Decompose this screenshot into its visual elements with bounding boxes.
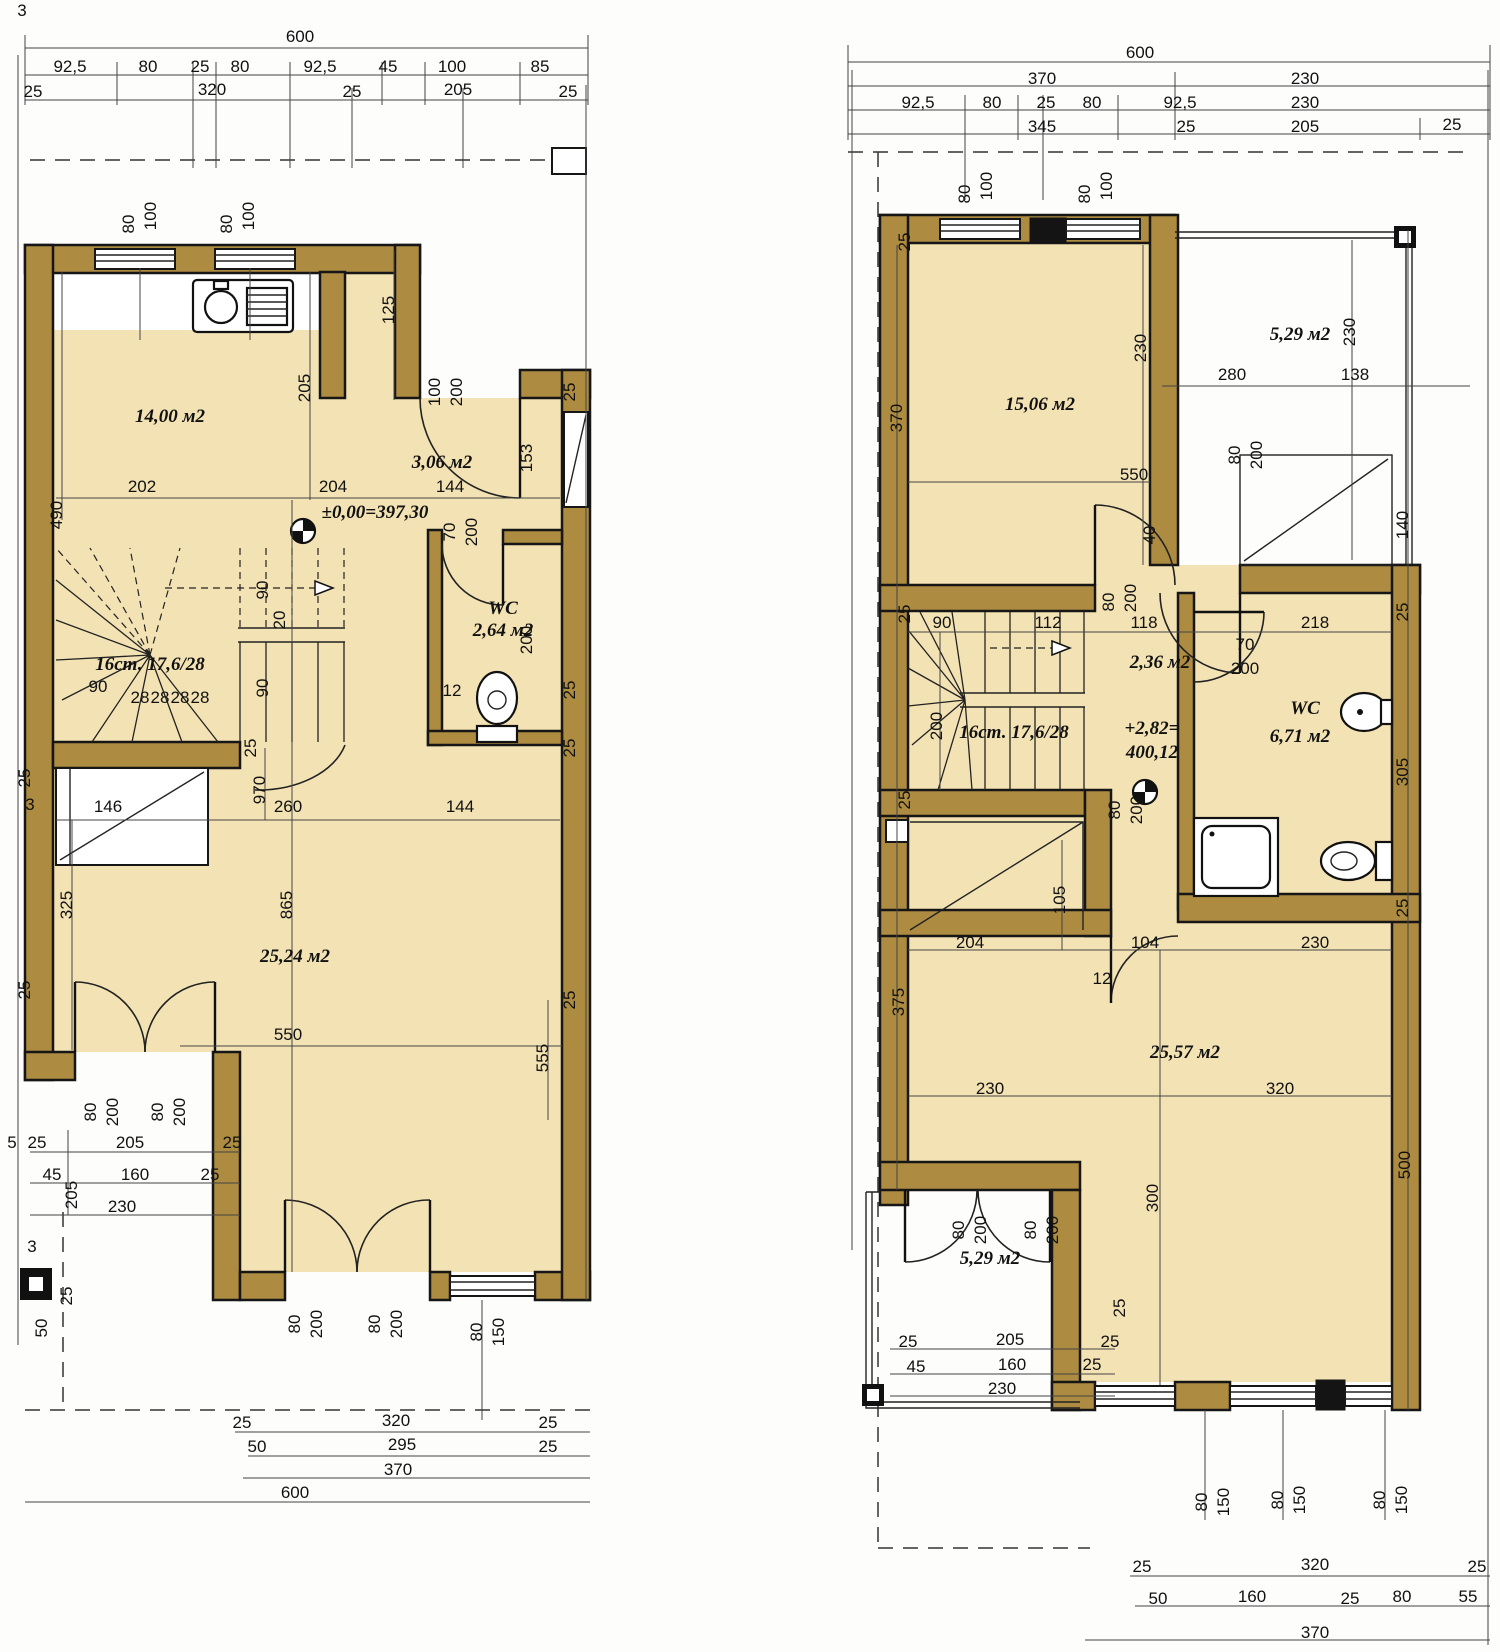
dim-label: 200 [103, 1098, 122, 1126]
dim-label: 25 [1393, 603, 1412, 622]
room-label-terrace: 5,29 м2 [1270, 324, 1331, 345]
dim-label: 144 [446, 797, 474, 816]
dim-label: 80 [1393, 1587, 1412, 1606]
dim-label: 45 [907, 1357, 926, 1376]
ground-floor-plan [18, 35, 590, 1502]
dim-label: 230 [976, 1079, 1004, 1098]
room-label-wc: WC [488, 598, 518, 619]
dim-label: 205 [62, 1181, 81, 1209]
dim-label: 25 [57, 1287, 76, 1306]
dim-label: 3 [25, 795, 34, 814]
dim-label: 150 [1392, 1486, 1411, 1514]
dim-label: 25 [1341, 1589, 1360, 1608]
dim-label: 50 [32, 1319, 51, 1338]
dim-label: 320 [382, 1411, 410, 1430]
dim-label: 80 [81, 1103, 100, 1122]
dim-label: 85 [531, 57, 550, 76]
window-80x100 [215, 249, 295, 269]
dim-label: 202 [128, 477, 156, 496]
dim-label: 550 [274, 1025, 302, 1044]
dim-label: 112 [1034, 613, 1061, 632]
dim-label: 138 [1341, 365, 1369, 384]
wall-left [25, 245, 53, 1080]
dim-label: 28 [171, 688, 190, 707]
dim-label: 28 [131, 688, 150, 707]
dim-label: 80 [1083, 93, 1102, 112]
dim-label: 90 [253, 581, 272, 600]
dim-label: 200 [517, 626, 536, 654]
dim-label: 144 [436, 477, 464, 496]
dim-label: 25 [559, 82, 578, 101]
dim-label: 205 [295, 374, 314, 402]
dim-label: 25 [1393, 899, 1412, 918]
dim-label: 25 [233, 1413, 252, 1432]
dim-label: 90 [253, 679, 272, 698]
dim-label: 204 [319, 477, 347, 496]
dim-label: 200 [307, 1310, 326, 1338]
dim-label: 550 [1120, 465, 1148, 484]
dim-label: 25 [899, 1332, 918, 1351]
dim-label: 230 [988, 1379, 1016, 1398]
dim-label: 80 [217, 215, 236, 234]
dim-label: 25 [1101, 1332, 1120, 1351]
dim-label: 70 [1236, 635, 1255, 654]
dim-label: 200 [447, 378, 466, 406]
dim-label: 92,5 [1163, 93, 1196, 112]
dim-label: 150 [489, 1318, 508, 1346]
dim-label: 25 [539, 1413, 558, 1432]
dim-label: 325 [57, 891, 76, 919]
floor-plan-sheet: 360092,580258092,54510085253202520525801… [0, 0, 1500, 1652]
wall-kitchen-divider [320, 272, 345, 398]
dim-label: 45 [43, 1165, 62, 1184]
dim-label: 205 [996, 1330, 1024, 1349]
dim-label: 280 [1218, 365, 1246, 384]
dim-label: 100 [425, 378, 444, 406]
dim-label: 25 [1083, 1355, 1102, 1374]
dim-label: 970 [250, 776, 269, 804]
dim-label: 200 [1043, 1216, 1062, 1244]
dim-label: 80 [1192, 1493, 1211, 1512]
dim-label: 25 [1037, 93, 1056, 112]
dim-label: 153 [517, 444, 536, 472]
dim-label: 200 [1127, 796, 1146, 824]
dim-label: 80 [467, 1323, 486, 1342]
wall-balcony-top [880, 1162, 1080, 1190]
dim-label: 500 [1395, 1151, 1414, 1179]
dim-label: 200 [1231, 659, 1259, 678]
window-80x150 [1345, 1386, 1392, 1406]
dim-label: 25 [24, 82, 43, 101]
dim-label: 25 [1133, 1557, 1152, 1576]
window-80x150 [1230, 1386, 1316, 1406]
dim-label: 80 [1075, 185, 1094, 204]
wardrobe [1240, 455, 1392, 565]
wall-left-2 [880, 215, 908, 1205]
dim-label: 600 [286, 27, 314, 46]
wall-right-2 [1392, 565, 1420, 1410]
terrace-parapet [1175, 226, 1416, 565]
dim-label: 25 [201, 1165, 220, 1184]
dim-label: 230 [108, 1197, 136, 1216]
dim-label: 25 [560, 739, 579, 758]
dim-label: 200 [971, 1216, 990, 1244]
wall-bottom-2 [1175, 1382, 1230, 1410]
dim-label: 80 [1021, 1221, 1040, 1240]
dim-label: 3 [27, 1237, 36, 1256]
upper-floor-plan [848, 45, 1490, 1645]
dim-label: 200 [927, 712, 946, 740]
dim-label: 90 [89, 677, 108, 696]
dim-label: 150 [1214, 1488, 1233, 1516]
dim-label: 200 [387, 1310, 406, 1338]
dim-label: 200 [462, 518, 481, 546]
dim-label: 25 [15, 981, 34, 1000]
wall-wc-bottom-2 [1178, 894, 1420, 922]
dim-label: 260 [274, 797, 302, 816]
dim-label: 70 [440, 523, 459, 542]
dim-label: 80 [119, 215, 138, 234]
level-mark-ground: ±0,00=397,30 [322, 502, 429, 523]
dim-label: 370 [384, 1460, 412, 1479]
dim-label: 25 [241, 739, 260, 758]
dim-label: 80 [1370, 1491, 1389, 1510]
bay-window-146 [56, 768, 208, 865]
dim-label: 305 [1393, 758, 1412, 786]
dim-label: 25 [191, 57, 210, 76]
dim-label: 80 [955, 185, 974, 204]
dim-label: 80 [139, 57, 158, 76]
room-label-bedroom: 15,06 м2 [1005, 394, 1076, 415]
dim-label: 205 [116, 1133, 144, 1152]
wall-step [395, 245, 420, 398]
wall-wc-left-2 [1178, 593, 1194, 910]
dim-label: 25 [895, 605, 914, 624]
dim-label: 80 [1268, 1491, 1287, 1510]
dim-label: 25 [15, 769, 34, 788]
room-label-hall: 3,06 м2 [411, 452, 473, 473]
dim-label: 230 [1301, 933, 1329, 952]
window-153 [564, 412, 588, 507]
dim-label: 92,5 [901, 93, 934, 112]
dim-label: 370 [1301, 1623, 1329, 1642]
room-label-living: 25,24 м2 [259, 946, 331, 967]
level-mark-icon [291, 519, 315, 543]
dim-label: 80 [1225, 446, 1244, 465]
dim-label: 80 [365, 1315, 384, 1334]
dim-label: 25 [895, 233, 914, 252]
dim-label: 600 [281, 1483, 309, 1502]
dim-label: 205 [1291, 117, 1319, 136]
dim-label: 12 [443, 681, 462, 700]
dim-label: 295 [388, 1435, 416, 1454]
column-symbol [20, 1268, 52, 1300]
dim-label: 205 [444, 80, 472, 99]
dim-label: 80 [231, 57, 250, 76]
wall-bottom [240, 1272, 285, 1300]
stairs-label: 16ст. 17,6/28 [95, 654, 205, 675]
window-80x100 [940, 219, 1020, 239]
dim-label: 28 [151, 688, 170, 707]
dim-label: 80 [285, 1315, 304, 1334]
dim-label: 50 [248, 1437, 267, 1456]
chimney-symbol [552, 148, 586, 174]
dim-label: 400,12 [1125, 742, 1179, 763]
dim-label: 80 [949, 1221, 968, 1240]
dim-label: 118 [1130, 613, 1157, 632]
dim-label: 25 [1443, 115, 1462, 134]
wall-stair [53, 742, 240, 768]
dim-label: 5 [7, 1133, 16, 1152]
dim-label: 204 [956, 933, 984, 952]
dim-label: 370 [887, 404, 906, 432]
dim-label: 3 [17, 1, 26, 20]
dim-label: 200 [1247, 441, 1266, 469]
dim-label: 230 [1291, 69, 1319, 88]
dim-label: 230 [1291, 93, 1319, 112]
dim-label: 320 [1301, 1555, 1329, 1574]
dim-label: 25 [1177, 117, 1196, 136]
dim-label: 146 [94, 797, 122, 816]
dim-label: 25 [560, 681, 579, 700]
wall-bottom [430, 1272, 450, 1300]
dim-label: 92,5 [53, 57, 86, 76]
dim-label: 28 [191, 688, 210, 707]
dim-label: 12 [1093, 969, 1112, 988]
dim-label: 150 [1290, 1486, 1309, 1514]
wall-post-2 [1316, 1380, 1345, 1410]
level-mark-upper: +2,82= [1125, 718, 1180, 739]
room-label-hall2: 2,36 м2 [1129, 652, 1191, 673]
dim-label: 600 [1126, 43, 1154, 62]
wall-closet-bottom [880, 910, 1111, 936]
dim-label: 80 [148, 1103, 167, 1122]
dim-label: 80 [1105, 801, 1124, 820]
dim-label: 40 [1140, 526, 1159, 545]
room-label-kitchen: 14,00 м2 [135, 406, 206, 427]
dim-label: 345 [1028, 117, 1056, 136]
dim-label: 490 [47, 501, 66, 529]
plans-canvas: 360092,580258092,54510085253202520525801… [0, 0, 1500, 1652]
room-label-wc2: WC [1290, 698, 1320, 719]
dim-label: 80 [983, 93, 1002, 112]
wall-wc-left [428, 530, 442, 745]
dim-label: 370 [1028, 69, 1056, 88]
dim-label: 25 [560, 383, 579, 402]
dim-label: 160 [121, 1165, 149, 1184]
window-80x100 [95, 249, 175, 269]
dim-label: 105 [1050, 886, 1069, 914]
dim-label: 100 [438, 57, 466, 76]
wall-bedroom-right [1150, 215, 1178, 565]
dim-label: 50 [1149, 1589, 1168, 1608]
dim-label: 100 [977, 172, 996, 200]
wall-bottom-left [25, 1052, 75, 1080]
dim-label: 320 [198, 80, 226, 99]
wall-wc-top [503, 530, 562, 544]
window-80x150 [450, 1276, 535, 1296]
dim-label: 865 [277, 891, 296, 919]
dim-label: 45 [379, 57, 398, 76]
dim-label: 55 [1459, 1587, 1478, 1606]
dim-label: 80 [1099, 593, 1118, 612]
dim-label: 20 [270, 611, 289, 630]
dim-label: 25 [223, 1133, 242, 1152]
dim-label: 92,5 [303, 57, 336, 76]
dim-label: 90 [933, 613, 952, 632]
dim-label: 375 [889, 988, 908, 1016]
dim-label: 6,71 м2 [1270, 726, 1331, 747]
dim-label: 218 [1301, 613, 1329, 632]
toilet [477, 672, 517, 742]
shower-tray [1194, 818, 1278, 896]
dim-label: 200 [1121, 584, 1140, 612]
dim-label: 140 [1393, 511, 1412, 539]
window-80x100 [1066, 219, 1140, 239]
dim-label: 200 [170, 1098, 189, 1126]
dim-label: 25 [343, 82, 362, 101]
dim-label: 25 [895, 791, 914, 810]
dim-label: 25 [28, 1133, 47, 1152]
toilet-2 [1321, 842, 1392, 880]
room-label-living2: 25,57 м2 [1149, 1042, 1221, 1063]
dim-label: 25 [539, 1437, 558, 1456]
dim-label: 555 [533, 1044, 552, 1072]
dim-label: 230 [1131, 334, 1150, 362]
kitchen-sink [193, 280, 293, 332]
dim-label: 160 [1238, 1587, 1266, 1606]
stairs-label-2: 16ст. 17,6/28 [959, 722, 1069, 743]
dim-label: 230 [1340, 318, 1359, 346]
wall-post [1030, 218, 1066, 243]
dim-label: 25 [1468, 1557, 1487, 1576]
dim-label: 300 [1143, 1184, 1162, 1212]
dim-label: 100 [141, 202, 160, 230]
dim-label: 25 [1110, 1299, 1129, 1318]
dim-label: 104 [1131, 933, 1159, 952]
dim-label: 25 [560, 991, 579, 1010]
room-label-balcony: 5,29 м2 [960, 1248, 1021, 1269]
dim-label: 320 [1266, 1079, 1294, 1098]
dim-label: 100 [1097, 172, 1116, 200]
dim-label: 125 [379, 296, 398, 324]
dim-label: 160 [998, 1355, 1026, 1374]
dim-label: 100 [239, 202, 258, 230]
